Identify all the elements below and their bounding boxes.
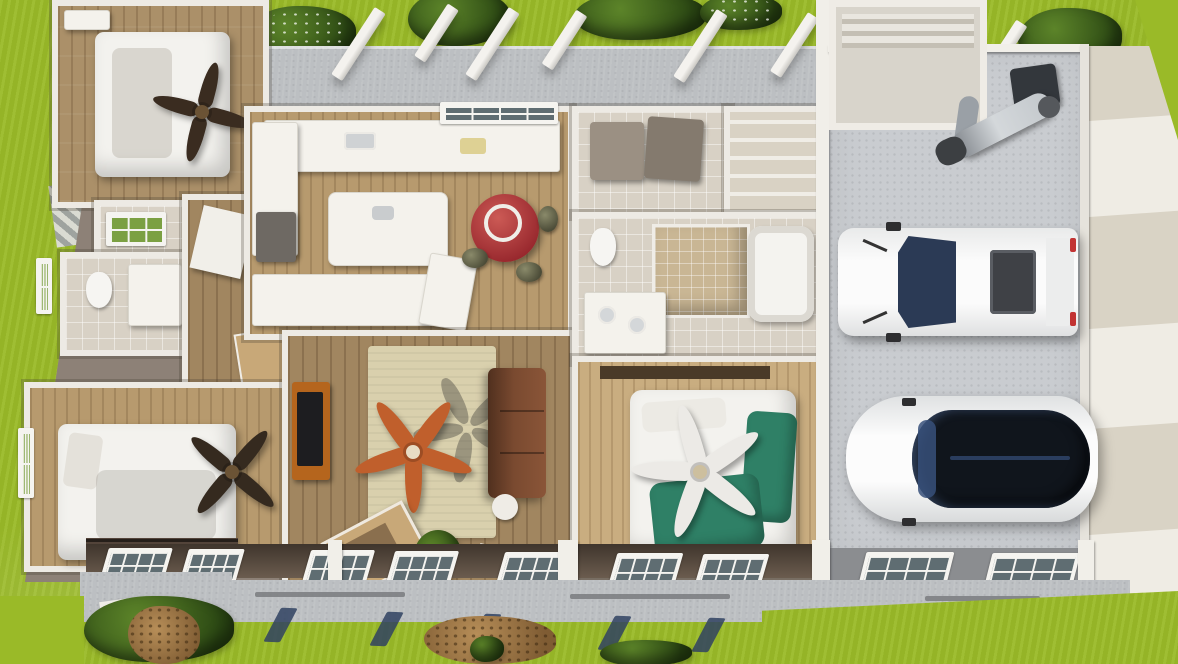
truck-windshield [898,236,956,328]
island-faucet [372,206,394,220]
bathtub [748,226,814,322]
walkway-vent [255,592,405,597]
shower [652,224,750,318]
bedroom-window-left [18,428,34,498]
truck-mirror [886,222,901,231]
vanity-sink [628,316,646,334]
bath-vanity [128,264,182,326]
sofa [488,368,546,498]
shrub-walkway [470,636,504,662]
kitchen-window [440,102,558,124]
sofa-cushion-line [500,410,544,412]
car-mirror [902,518,916,526]
grass-bottom-left [0,596,84,664]
truck-mirror [886,333,901,342]
car-mirror [902,398,916,406]
washer [590,122,644,180]
vanity-sink [598,306,616,324]
place-setting [484,204,522,242]
storage-shelf [842,14,974,48]
truck-bed-cover [990,250,1036,314]
refrigerator [256,212,296,262]
stove-detail [460,138,486,154]
truck-taillight [1070,312,1076,326]
mulch-patch-bottom-left [128,606,200,664]
dresser [64,10,110,30]
truck-taillight [1070,238,1076,252]
dining-chair [462,248,488,268]
scene [0,0,1178,664]
toilet [86,272,112,308]
dining-chair [538,206,558,232]
tv-screen [297,392,323,466]
dryer [644,116,704,182]
side-table [492,494,518,520]
shrub-bottom-center [600,640,692,664]
sofa-cushion-line [500,452,544,454]
toilet [590,228,616,266]
shrub-top-center [574,0,706,40]
dining-chair [516,262,542,282]
car-roof-spine [950,456,1070,460]
closet-garden-window [106,212,166,246]
kitchen-counter-top [264,120,560,172]
house-garage-wall [816,0,829,576]
motorcycle-front-wheel [1038,96,1060,118]
master-vanity [584,292,666,354]
driveway-light-band [1086,115,1178,217]
pantry [730,112,820,214]
headboard [600,366,770,379]
walkway-vent [570,594,730,599]
driveway-light-band [1086,323,1178,429]
car-windshield-band [918,420,936,498]
kitchen-sink [344,132,376,150]
bath-window [36,258,52,314]
